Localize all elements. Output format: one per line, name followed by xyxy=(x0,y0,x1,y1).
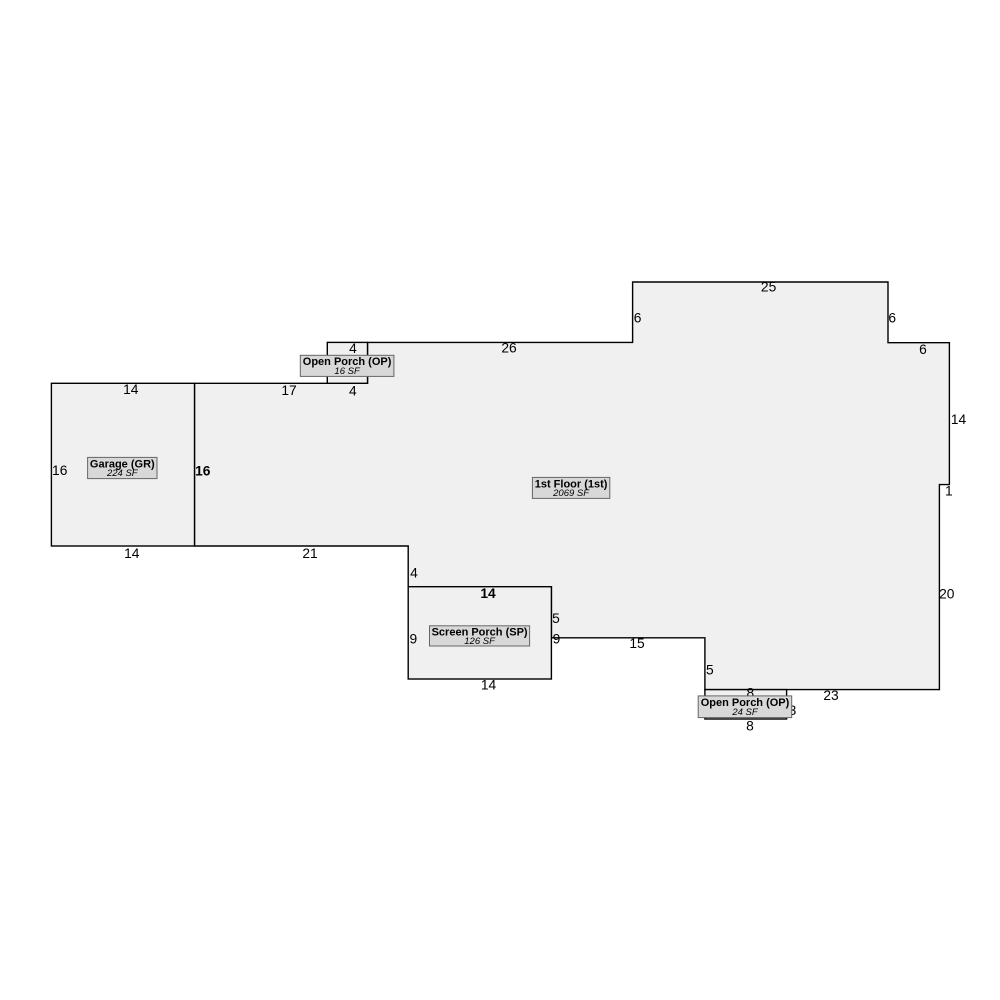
svg-text:4: 4 xyxy=(410,566,418,581)
svg-text:21: 21 xyxy=(302,546,317,561)
svg-text:6: 6 xyxy=(919,342,927,357)
svg-text:6: 6 xyxy=(634,311,642,326)
svg-text:8: 8 xyxy=(746,719,754,734)
svg-text:14: 14 xyxy=(481,678,497,693)
svg-text:26: 26 xyxy=(501,341,517,356)
svg-text:1: 1 xyxy=(945,484,953,499)
svg-text:4: 4 xyxy=(349,341,357,356)
svg-text:9: 9 xyxy=(553,632,561,647)
svg-text:5: 5 xyxy=(706,663,714,678)
svg-text:5: 5 xyxy=(552,611,560,626)
svg-text:17: 17 xyxy=(281,383,296,398)
svg-text:15: 15 xyxy=(629,636,645,651)
svg-text:20: 20 xyxy=(939,587,955,602)
svg-text:126 SF: 126 SF xyxy=(464,636,496,647)
svg-text:2069 SF: 2069 SF xyxy=(552,488,590,499)
svg-text:14: 14 xyxy=(123,382,139,397)
svg-text:23: 23 xyxy=(823,688,839,703)
svg-text:16 SF: 16 SF xyxy=(334,366,361,377)
svg-text:16: 16 xyxy=(52,463,68,478)
svg-text:14: 14 xyxy=(480,586,496,601)
svg-text:25: 25 xyxy=(761,280,777,295)
svg-text:4: 4 xyxy=(349,383,357,398)
svg-text:224 SF: 224 SF xyxy=(106,468,139,479)
svg-text:9: 9 xyxy=(409,632,417,647)
svg-text:24 SF: 24 SF xyxy=(731,707,759,718)
svg-text:14: 14 xyxy=(951,412,967,427)
svg-text:14: 14 xyxy=(124,546,140,561)
svg-text:16: 16 xyxy=(195,463,211,478)
svg-text:6: 6 xyxy=(888,311,896,326)
